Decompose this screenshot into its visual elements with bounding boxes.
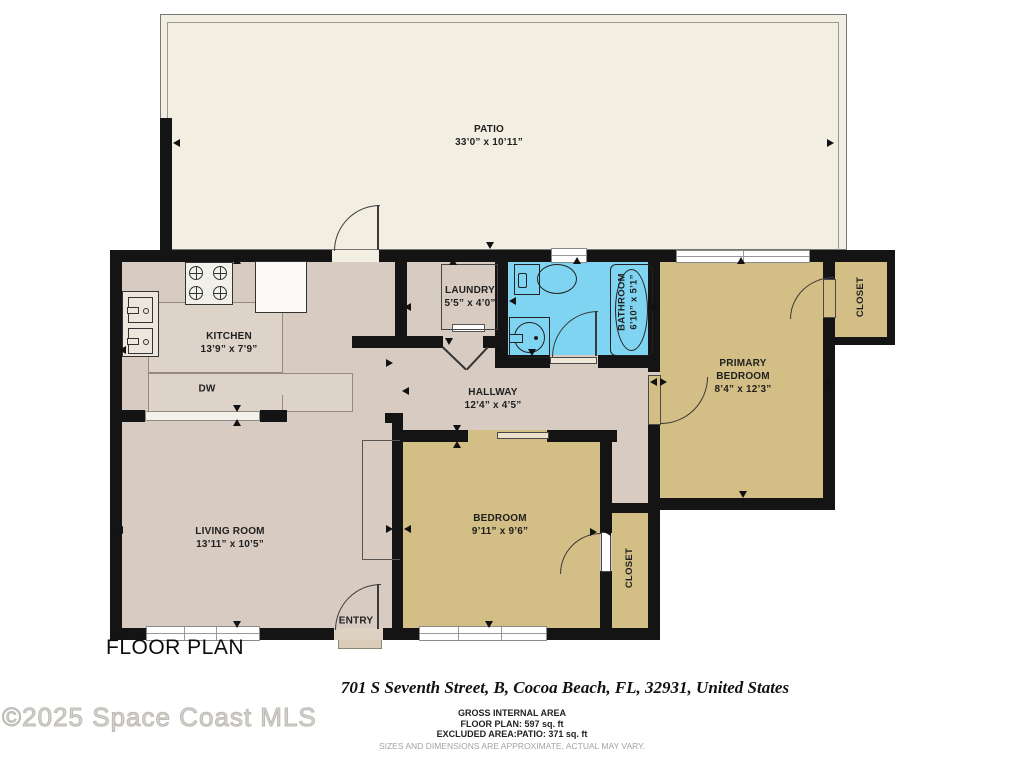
- stove: [185, 262, 233, 305]
- wall: [260, 410, 287, 422]
- dimension-arrow: [116, 526, 123, 534]
- bedroom-sliding-door-slab: [497, 432, 549, 439]
- room-dims: 33’0” x 10’11”: [455, 136, 523, 149]
- room-name: PATIO: [455, 123, 523, 136]
- toilet-bowl: [537, 264, 577, 294]
- dimension-arrow: [590, 528, 597, 536]
- room-name: BATHROOM: [617, 273, 629, 331]
- wall: [600, 442, 612, 533]
- bathroom-door-slab: [550, 357, 597, 364]
- dimension-arrow: [453, 441, 461, 448]
- room-dims: 12’4” x 4’5”: [465, 399, 522, 412]
- wall: [887, 250, 895, 345]
- dimension-arrow: [652, 303, 659, 311]
- wall: [648, 510, 660, 628]
- dimension-arrow: [650, 378, 657, 386]
- dimension-arrow: [496, 346, 503, 354]
- room-name: ENTRY: [339, 614, 374, 627]
- sink-drain: [143, 308, 149, 314]
- property-address: 701 S Seventh Street, B, Cocoa Beach, FL…: [106, 678, 1024, 698]
- dimension-arrow: [604, 528, 611, 536]
- room-name: LAUNDRY: [444, 284, 495, 297]
- stove-burner: [213, 286, 227, 300]
- patio-door-opening: [332, 250, 379, 262]
- dimension-arrow: [233, 257, 241, 264]
- room-name: PRIMARY BEDROOM: [699, 357, 787, 383]
- room-name: KITCHEN: [201, 330, 258, 343]
- room-label-kitchen: KITCHEN 13’9” x 7’9”: [201, 330, 258, 356]
- stove-burner: [189, 266, 203, 280]
- toilet-flush: [518, 273, 527, 288]
- bathroom-drain: [534, 336, 538, 340]
- door-leaf: [595, 311, 597, 356]
- dimension-arrow: [233, 405, 241, 412]
- dimension-arrow: [660, 378, 667, 386]
- dimension-arrow: [386, 359, 393, 367]
- mls-watermark: ©2025 Space Coast MLS: [2, 702, 317, 733]
- stove-burner: [213, 266, 227, 280]
- door-leaf: [377, 584, 379, 629]
- room-dims: 13’11” x 10’5”: [195, 538, 264, 551]
- entry-step: [338, 640, 382, 649]
- dimension-arrow: [826, 379, 833, 387]
- room-label-living-room: LIVING ROOM 13’11” x 10’5”: [195, 525, 264, 551]
- dimension-arrow: [739, 491, 747, 498]
- window: [419, 626, 547, 641]
- room-name: CLOSET: [855, 277, 867, 317]
- wall: [600, 571, 612, 628]
- room-label-bedroom: BEDROOM 9’11” x 9’6”: [472, 512, 528, 538]
- kitchen-pass-opening: [145, 411, 260, 421]
- room-name: DW: [198, 382, 215, 395]
- dimension-arrow: [386, 525, 393, 533]
- room-name: HALLWAY: [465, 386, 522, 399]
- dimension-arrow: [119, 346, 126, 354]
- sink-faucet: [127, 307, 139, 314]
- page-title: FLOOR PLAN: [106, 636, 244, 660]
- dimension-arrow: [528, 349, 536, 356]
- dimension-arrow: [233, 419, 241, 426]
- dimension-arrow: [827, 139, 834, 147]
- room-dims: 13’9” x 7’9”: [201, 343, 258, 356]
- kitchen-sink: [122, 291, 159, 357]
- dimension-arrow: [233, 621, 241, 628]
- dimension-arrow: [509, 297, 516, 305]
- label-dishwasher: DW: [198, 382, 215, 395]
- wall: [385, 413, 403, 423]
- room-label-bedroom-closet: CLOSET: [624, 548, 636, 588]
- wall: [547, 430, 617, 442]
- stove-burner: [189, 286, 203, 300]
- disclaimer: SIZES AND DIMENSIONS ARE APPROXIMATE, AC…: [0, 741, 1024, 752]
- dimension-arrow: [573, 257, 581, 264]
- sink-basin: [128, 297, 153, 323]
- wall: [648, 498, 835, 510]
- room-label-hallway: HALLWAY 12’4” x 4’5”: [465, 386, 522, 412]
- kitchen-cabinet: [255, 261, 307, 313]
- wall: [835, 337, 895, 345]
- room-dims: 5’5” x 4’0”: [444, 297, 495, 310]
- bedroom-closet-door-slab: [601, 532, 611, 572]
- wall: [160, 118, 172, 250]
- wall: [110, 250, 122, 640]
- room-dims: 6’10” x 5’1”: [629, 273, 641, 331]
- dimension-arrow: [486, 242, 494, 249]
- room-name: BEDROOM: [472, 512, 528, 525]
- dimension-arrow: [404, 303, 411, 311]
- room-label-primary-closet: CLOSET: [855, 277, 867, 317]
- wall: [110, 410, 145, 422]
- room-label-primary-bedroom: PRIMARY BEDROOM 8’4” x 12’3”: [699, 357, 787, 397]
- dimension-arrow: [449, 258, 457, 265]
- dimension-arrow: [402, 387, 409, 395]
- dimension-arrow: [404, 525, 411, 533]
- door-leaf: [377, 205, 379, 250]
- wall: [352, 336, 443, 348]
- sink-faucet: [127, 338, 139, 345]
- dimension-arrow: [737, 257, 745, 264]
- floor-plan-page: PATIO 33’0” x 10’11” KITCHEN 13’9” x 7’9…: [0, 0, 1024, 757]
- sink-basin: [128, 328, 153, 354]
- room-name: LIVING ROOM: [195, 525, 264, 538]
- room-dims: 8’4” x 12’3”: [699, 384, 787, 397]
- dimension-arrow: [485, 621, 493, 628]
- room-name: CLOSET: [624, 548, 636, 588]
- bathroom-faucet: [509, 334, 523, 343]
- living-alcove-outline: [362, 440, 400, 560]
- window: [551, 248, 587, 263]
- room-dims: 9’11” x 9’6”: [472, 525, 528, 538]
- wall: [648, 425, 660, 510]
- room-label-laundry: LAUNDRY 5’5” x 4’0”: [444, 284, 495, 310]
- dimension-arrow: [173, 139, 180, 147]
- dimension-arrow: [445, 338, 453, 345]
- label-entry: ENTRY: [339, 614, 374, 627]
- dimension-arrow: [453, 425, 461, 432]
- kitchen-counter-dw: [148, 373, 353, 412]
- sink-drain: [143, 339, 149, 345]
- room-label-patio: PATIO 33’0” x 10’11”: [455, 123, 523, 149]
- room-label-bathroom: BATHROOM 6’10” x 5’1”: [617, 273, 642, 331]
